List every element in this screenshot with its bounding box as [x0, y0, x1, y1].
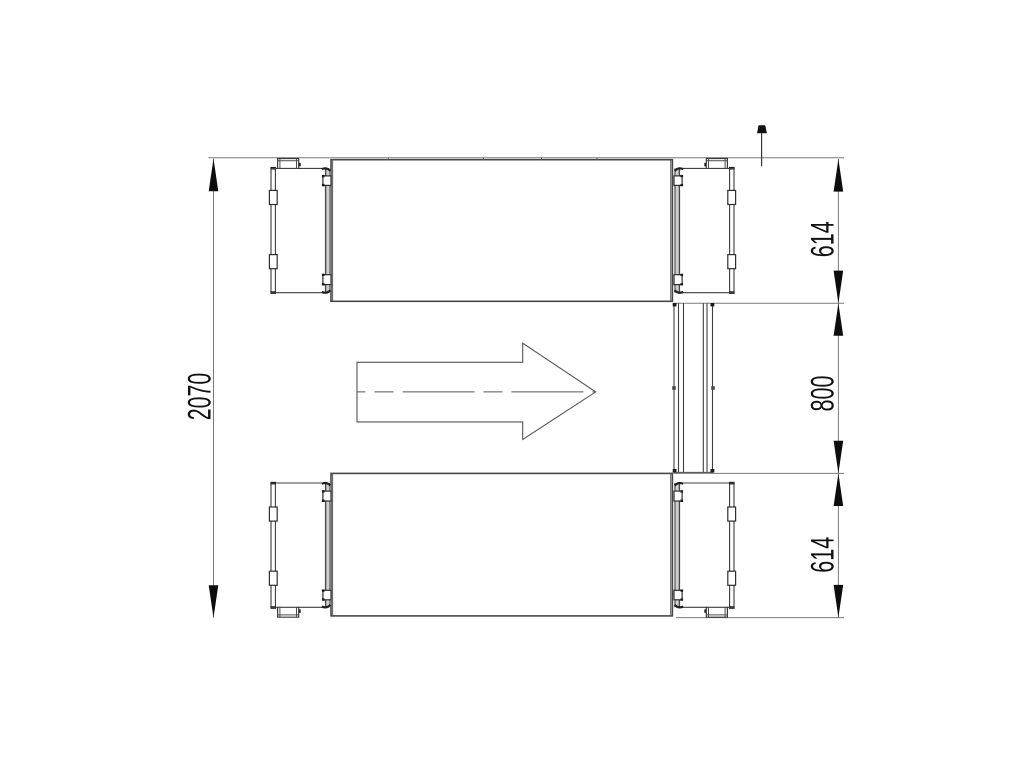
svg-text:800: 800 [805, 376, 841, 412]
svg-text:614: 614 [805, 221, 841, 257]
svg-text:2070: 2070 [182, 373, 218, 421]
svg-text:614: 614 [805, 537, 841, 573]
